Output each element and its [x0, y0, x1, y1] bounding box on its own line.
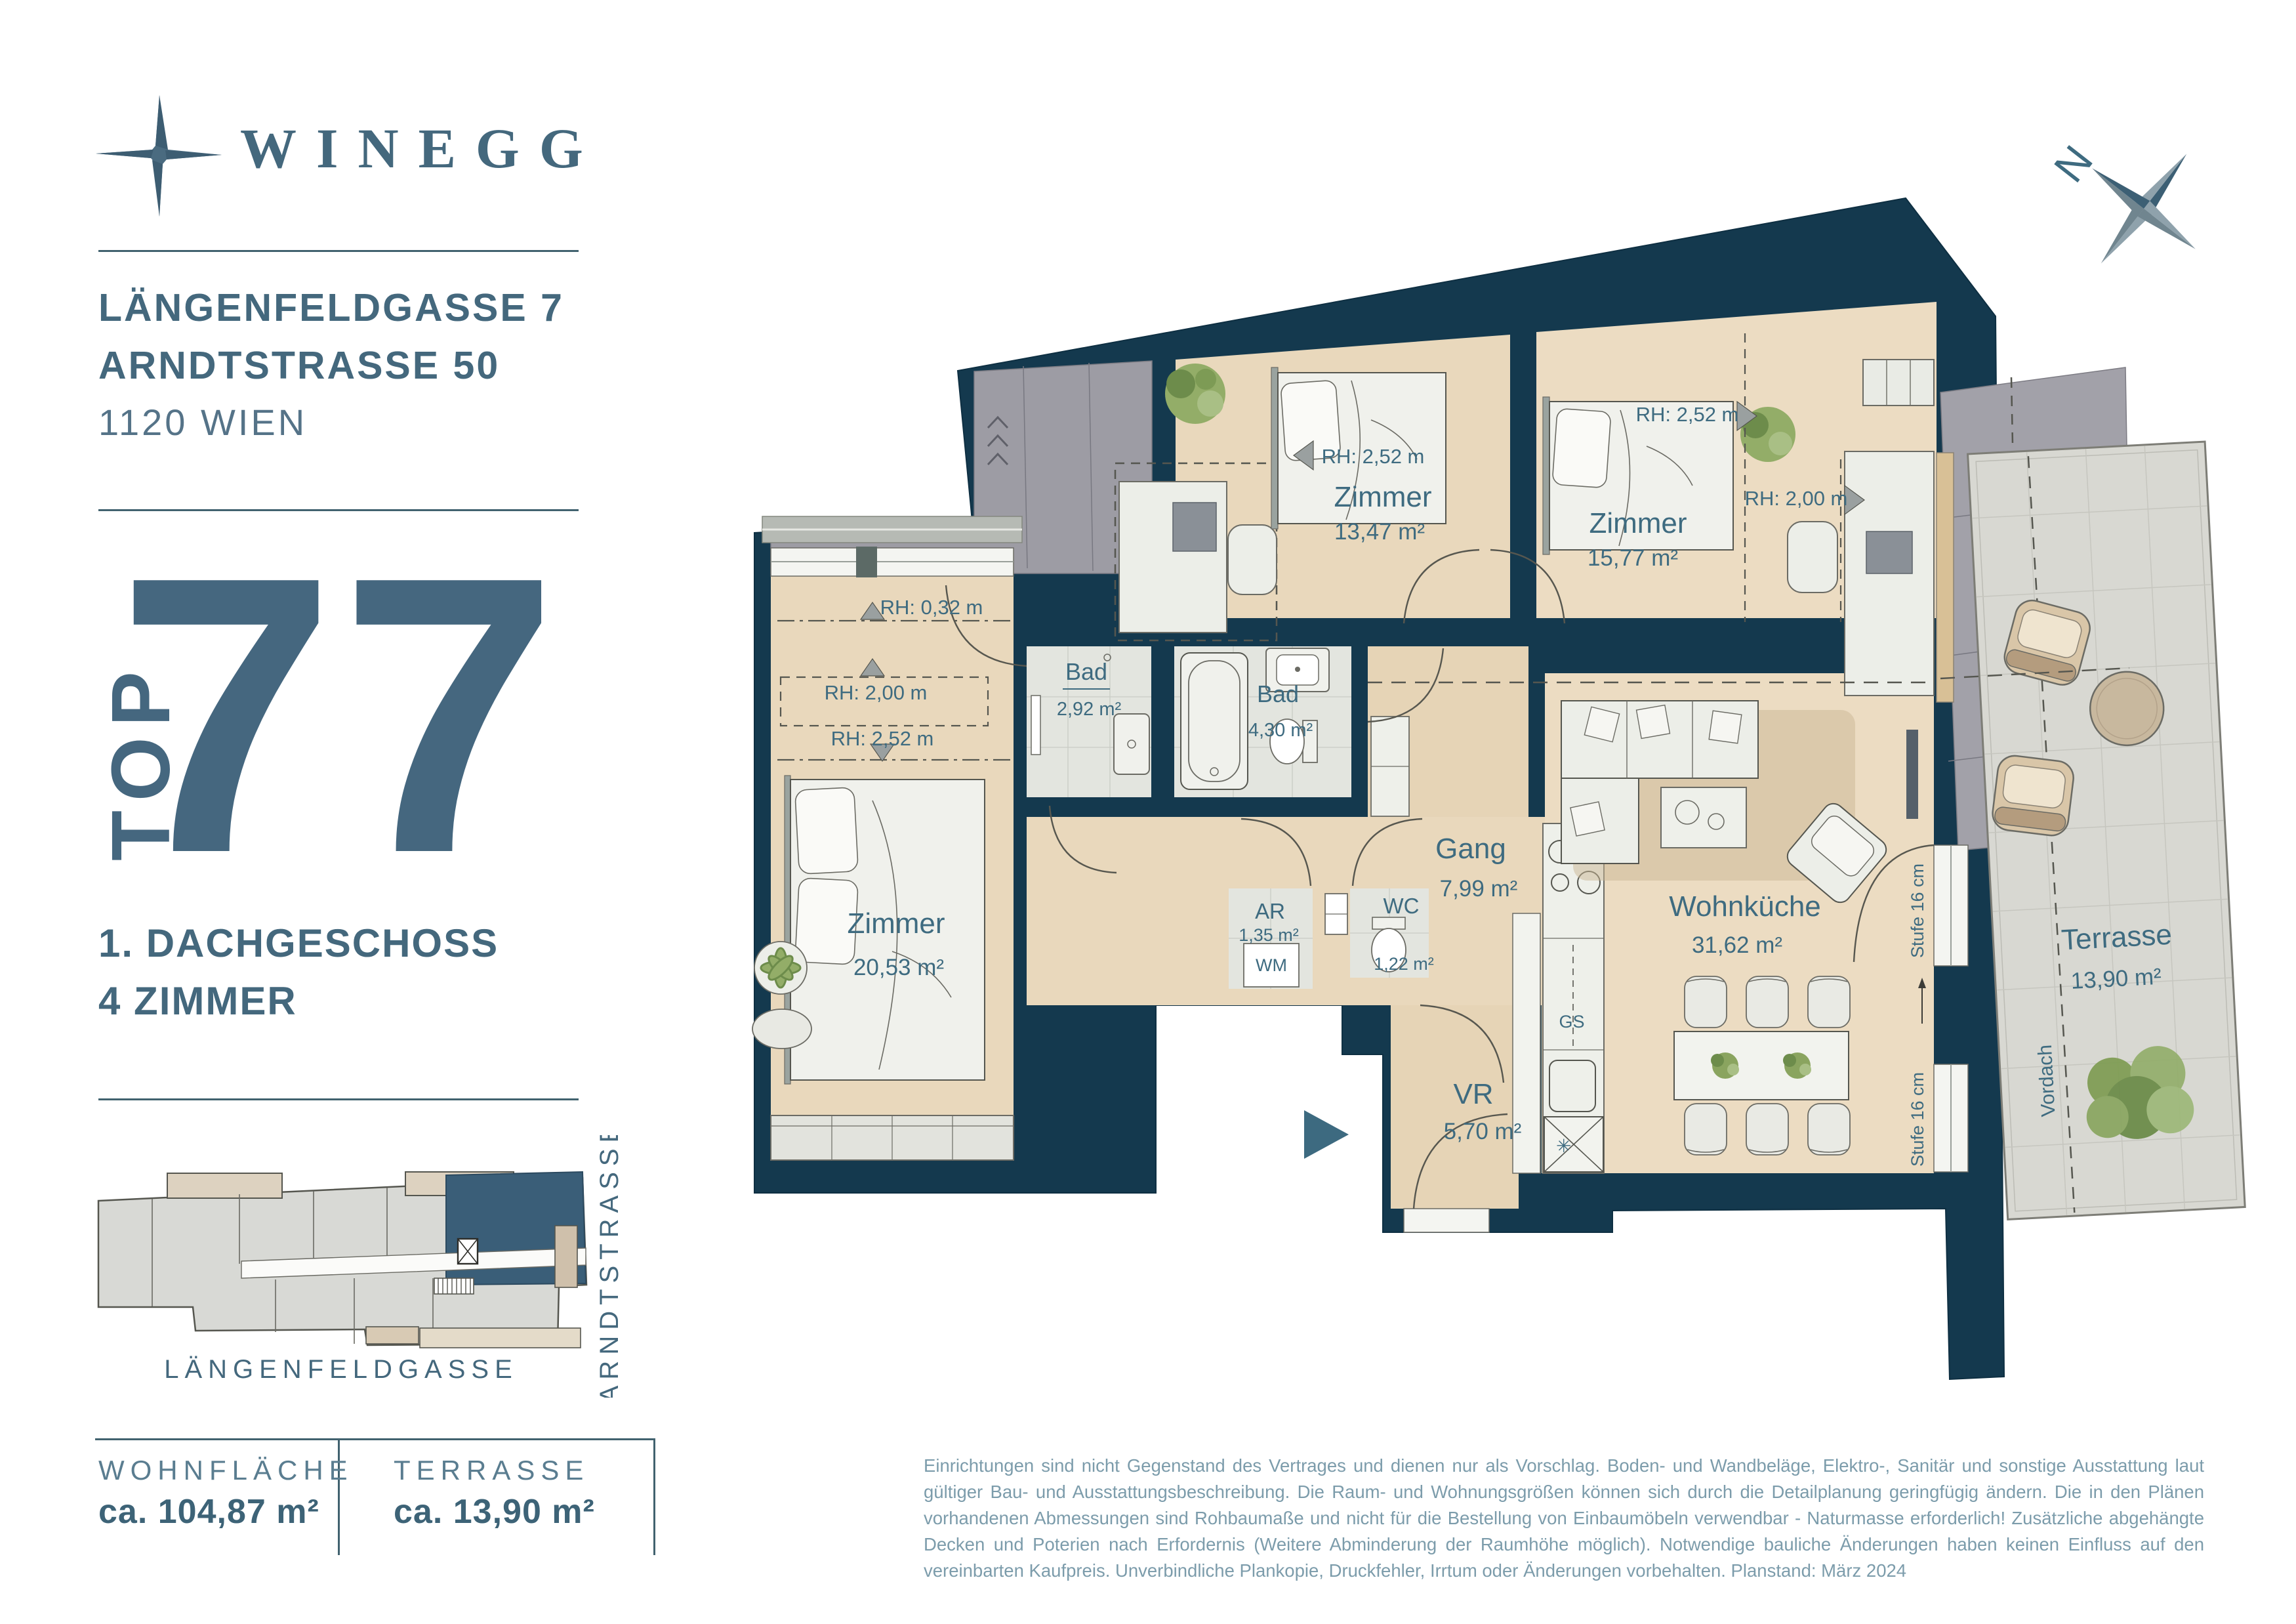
room-label-wohnkueche: Wohnküche — [1669, 890, 1821, 923]
disclaimer-text: Einrichtungen sind nicht Gegenstand des … — [924, 1453, 2204, 1583]
ar-wm-label: WM — [1256, 955, 1287, 975]
stufe-label-upper: Stufe 16 cm — [1908, 864, 1927, 958]
z2-bed-headboard — [1543, 397, 1549, 554]
tv — [1906, 730, 1918, 819]
terrasse-value: ca. 13,90 m² — [394, 1495, 595, 1529]
room-area-bad1: 2,92 m² — [1057, 699, 1122, 720]
winegg-star-icon — [91, 92, 228, 220]
z2-chair — [1788, 522, 1837, 593]
divider-floor — [98, 1098, 579, 1100]
unit-number: 77 — [117, 518, 562, 912]
street-label-laengenfeldgasse: LÄNGENFELDGASSE — [164, 1355, 518, 1384]
room-area-vr: 5,70 m² — [1444, 1119, 1522, 1144]
room-label-terrasse: Terrasse — [2060, 919, 2173, 957]
dining-table — [1674, 1031, 1849, 1100]
wohnflaeche-label: WOHNFLÄCHE — [98, 1457, 354, 1484]
room-area-wohnkueche: 31,62 m² — [1692, 932, 1782, 958]
z2-rh-label-2: RH: 2,00 m — [1745, 487, 1848, 510]
kitchen-fridge-icon: ✳ — [1544, 1117, 1603, 1172]
z3-rh-label-252: RH: 2,52 m — [831, 727, 934, 750]
floor-designation: 1. DACHGESCHOSS — [98, 924, 499, 963]
site-plan: LÄNGENFELDGASSE ARNDTSTRASSE — [46, 1135, 669, 1398]
z3-rh-label-032: RH: 0,32 m — [880, 596, 983, 619]
brand-wordmark: WINEGG — [240, 115, 603, 181]
room-area-zimmer2: 15,77 m² — [1588, 545, 1678, 571]
wohnflaeche-value: ca. 104,87 m² — [98, 1495, 319, 1529]
coffee-table — [1661, 787, 1746, 848]
z1-bed-headboard — [1271, 367, 1278, 529]
z2-window-sill — [1937, 453, 1954, 702]
room-label-wc: WC — [1384, 894, 1420, 918]
bad1-towel-rail — [1031, 696, 1040, 755]
site-beige-strip-bottom2 — [420, 1328, 581, 1348]
site-stairs-icon — [434, 1278, 474, 1294]
z3-rh-label-200: RH: 2,00 m — [825, 681, 928, 704]
room-count: 4 ZIMMER — [98, 982, 297, 1021]
room-area-gang: 7,99 m² — [1440, 876, 1518, 902]
site-annex-1 — [167, 1173, 282, 1198]
z2-rh-label-1: RH: 2,52 m — [1636, 403, 1739, 426]
room-label-bad2: Bad — [1257, 680, 1299, 707]
floor-plan: Terrasse 13,90 m² Vordach — [695, 118, 2270, 1398]
room-area-zimmer3: 20,53 m² — [853, 955, 944, 980]
terrace-lounge-chair-2 — [1991, 754, 2076, 837]
sofa-pillow-2 — [1637, 705, 1670, 739]
room-area-zimmer1: 13,47 m² — [1334, 519, 1425, 545]
bad1-shower — [1114, 714, 1149, 774]
room-area-ar: 1,35 m² — [1239, 925, 1299, 945]
room-label-zimmer1: Zimmer — [1334, 481, 1431, 513]
room-label-gang: Gang — [1435, 833, 1506, 865]
terrasse-label: TERRASSE — [394, 1457, 589, 1484]
divider-top — [98, 250, 579, 252]
entry-arrow — [1304, 1110, 1349, 1159]
room-label-vr: VR — [1453, 1078, 1493, 1110]
z1-rh-label: RH: 2,52 m — [1322, 445, 1425, 468]
address-line-2: ARNDTSTRASSE 50 — [98, 346, 500, 385]
z3-pouf — [752, 1009, 811, 1049]
room-label-ar: AR — [1255, 899, 1285, 923]
svg-text:✳: ✳ — [1556, 1136, 1571, 1156]
room-area-wc: 1,22 m² — [1374, 954, 1434, 974]
zimmer3-window-mullion — [856, 547, 877, 577]
street-label-arndtstrasse: ARNDTSTRASSE — [595, 1135, 624, 1398]
site-beige-strip-bottom1 — [366, 1327, 419, 1344]
vordach-label: Vordach — [2034, 1044, 2060, 1117]
footer-rule — [95, 1438, 653, 1440]
front-door-threshold — [1404, 1209, 1489, 1232]
z1-chair — [1228, 525, 1277, 594]
site-elevator-icon — [458, 1239, 478, 1264]
room-label-bad1: Bad — [1065, 658, 1107, 685]
sofa-pillow-3 — [1709, 711, 1742, 743]
room-area-bad2: 4,30 m² — [1248, 720, 1313, 741]
address-line-1: LÄNGENFELDGASSE 7 — [98, 289, 564, 327]
room-label-zimmer2: Zimmer — [1589, 507, 1687, 539]
terrace: Terrasse 13,90 m² Vordach — [1968, 442, 2245, 1219]
z3-pillow-1 — [795, 787, 859, 875]
sofa-pillow-4 — [1570, 802, 1605, 836]
z2-pillow — [1552, 408, 1611, 488]
z1-laptop — [1173, 503, 1216, 551]
footer-divider-2 — [653, 1438, 655, 1555]
stufe-label-lower: Stufe 16 cm — [1908, 1072, 1927, 1167]
floorplan-sheet: WINEGG LÄNGENFELDGASSE 7 ARNDTSTRASSE 50… — [0, 0, 2296, 1624]
room-label-zimmer3: Zimmer — [847, 907, 945, 940]
address-city: 1120 WIEN — [98, 404, 307, 441]
site-beige-strip-right — [555, 1226, 577, 1287]
room-area-terrasse: 13,90 m² — [2070, 964, 2162, 994]
gs-label: GS — [1559, 1012, 1584, 1031]
z2-laptop — [1866, 531, 1912, 573]
sofa-pillow-1 — [1584, 707, 1619, 741]
z1-plant — [1165, 364, 1225, 424]
z2-wardrobe — [1863, 360, 1934, 406]
